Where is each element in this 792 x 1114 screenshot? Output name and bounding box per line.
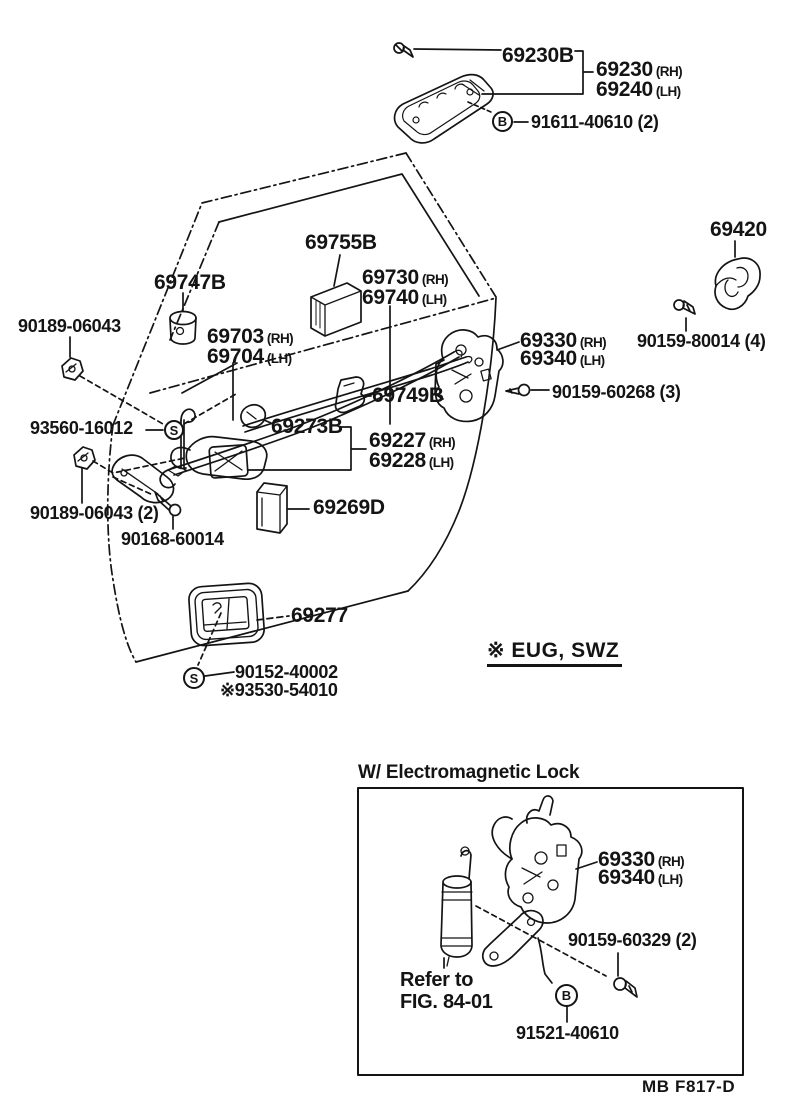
part-number: 69240 [596, 78, 653, 101]
parts-diagram-page: 69230B 69230(RH) 69240(LH) 91611-40610 (… [0, 0, 792, 1114]
bezel-69277-drawing [188, 582, 289, 665]
label-69740: 69740(LH) [362, 287, 447, 308]
inside-handle-drawing [171, 437, 267, 480]
part-number: 69340 [520, 347, 577, 370]
door-lock-drawing [435, 330, 519, 422]
refer-note-line1: Refer to [400, 970, 473, 990]
refer-note-line2: FIG. 84-01 [400, 992, 493, 1012]
screw-60268-drawing [506, 385, 549, 396]
leader-40002 [205, 672, 234, 676]
side-qualifier: (LH) [580, 353, 605, 368]
striker-drawing [715, 241, 760, 309]
side-qualifier: (RH) [267, 331, 293, 346]
side-qualifier: (LH) [422, 292, 447, 307]
actuator-drawing [441, 847, 472, 968]
label-69227: 69227(RH) [369, 430, 455, 451]
label-90159-60329: 90159-60329 (2) [568, 931, 697, 949]
pad-69269D-drawing [257, 483, 309, 533]
label-91521-40610: 91521-40610 [516, 1024, 619, 1042]
market-note: ※ EUG, SWZ [487, 640, 622, 667]
label-69240: 69240(LH) [596, 79, 681, 100]
label-90189-06043: 90189-06043 [18, 317, 121, 335]
label-69230B: 69230B [502, 45, 574, 66]
label-90189-06043-2: 90189-06043 (2) [30, 504, 159, 522]
label-inset-69340: 69340(LH) [598, 867, 683, 888]
side-qualifier: (RH) [429, 435, 455, 450]
label-69749B: 69749B [372, 385, 444, 406]
label-90159-80014: 90159-80014 (4) [637, 332, 766, 350]
side-qualifier: (LH) [267, 351, 292, 366]
label-69703: 69703(RH) [207, 326, 293, 347]
label-91611-40610: 91611-40610 (2) [531, 113, 659, 131]
label-69230: 69230(RH) [596, 59, 682, 80]
clip-06043-b-drawing [74, 447, 95, 469]
label-69269D: 69269D [313, 497, 385, 518]
part-number: 69704 [207, 345, 264, 368]
leader-69230B [414, 49, 501, 50]
label-69340: 69340(LH) [520, 348, 605, 369]
callout-S: S [164, 420, 184, 440]
figure-code: MB F817-D [642, 1078, 735, 1095]
cassette-drawing [311, 255, 361, 336]
inset-title: W/ Electromagnetic Lock [358, 763, 579, 782]
side-qualifier: (LH) [429, 455, 454, 470]
bracket-drawing [483, 911, 552, 983]
callout-B: B [555, 984, 578, 1007]
label-93560-16012: 93560-16012 [30, 419, 133, 437]
label-69747B: 69747B [154, 272, 226, 293]
screw-80014-drawing [674, 300, 695, 331]
label-69420: 69420 [710, 219, 767, 240]
knob-69273B-drawing [241, 405, 271, 427]
label-90159-60268: 90159-60268 (3) [552, 383, 681, 401]
side-qualifier: (RH) [656, 64, 682, 79]
label-90152-40002: 90152-40002 [235, 663, 338, 681]
label-69704: 69704(LH) [207, 346, 292, 367]
part-number: 69740 [362, 286, 419, 309]
screw-60329-drawing [614, 953, 637, 997]
label-90168-60014: 90168-60014 [121, 530, 224, 548]
outside-handle-drawing [395, 75, 494, 143]
label-69277: 69277 [291, 605, 348, 626]
side-qualifier: (LH) [656, 84, 681, 99]
label-93530-54010: ※93530-54010 [220, 681, 338, 699]
part-number: 69228 [369, 449, 426, 472]
side-qualifier: (RH) [422, 272, 448, 287]
clip-69747B-drawing [170, 293, 196, 344]
part-number: 69340 [598, 866, 655, 889]
label-69273B: 69273B [271, 416, 343, 437]
em-lock-drawing [492, 796, 597, 923]
label-69228: 69228(LH) [369, 450, 454, 471]
side-qualifier: (LH) [658, 872, 683, 887]
label-69730: 69730(RH) [362, 267, 448, 288]
callout-S: S [183, 667, 205, 689]
callout-B: B [492, 111, 513, 132]
label-69755B: 69755B [305, 232, 377, 253]
screw-69230B-drawing [394, 43, 413, 57]
